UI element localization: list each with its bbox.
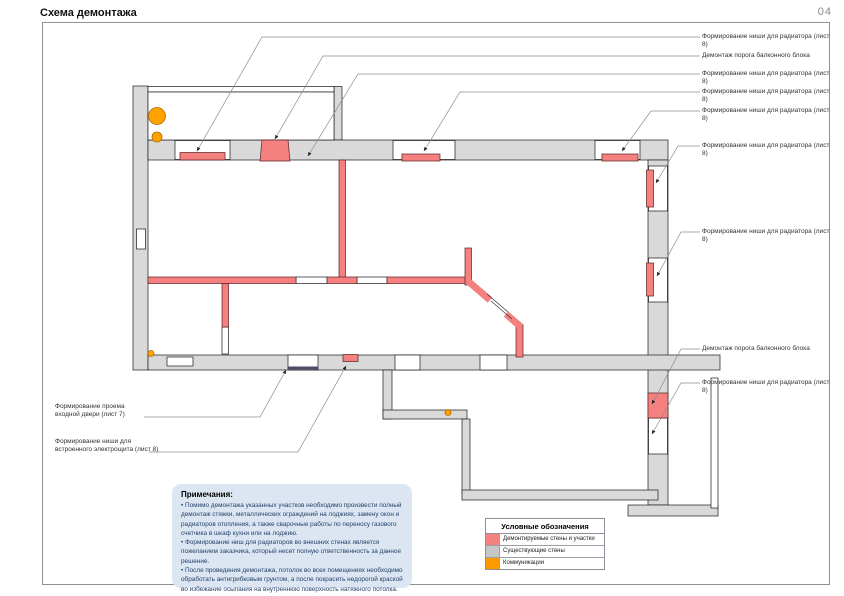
wall-wc-bottom — [383, 410, 467, 419]
demolished-walls — [148, 140, 668, 418]
demo-wall-horiz-1 — [148, 277, 296, 284]
door-opening-hall — [395, 355, 420, 370]
legend-box: Условные обозначения Демонтируемые стены… — [485, 518, 605, 570]
callout-radiator-niche-3: Формирование ниши для радиатора (лист 8) — [702, 88, 832, 104]
balcony-threshold-bottom — [648, 393, 668, 418]
demo-wall-horiz-2 — [327, 277, 357, 284]
demo-wall-horiz-3 — [387, 277, 466, 284]
note-item-2: • Формирование ниш для радиаторов во вне… — [181, 538, 403, 566]
demo-wall-kitchen-divider — [339, 160, 346, 278]
balcony-interior — [148, 92, 334, 140]
door-gap-redwall-3 — [222, 327, 229, 354]
radiator-niche-d — [647, 170, 654, 207]
legend-label-communications: Коммуникации — [500, 558, 604, 569]
legend-swatch-communications — [486, 558, 500, 569]
door-gap-redwall-2 — [357, 277, 387, 284]
comm-gas-meter — [149, 108, 166, 125]
legend-swatch-demolished — [486, 534, 500, 545]
callout-balcony-threshold-1: Демонтаж порога балконного блока — [702, 52, 832, 60]
wall-lower-left — [462, 419, 470, 494]
notes-title: Примечания: — [181, 490, 403, 499]
wall-loggia-bottom — [628, 505, 718, 516]
radiator-niche-c — [602, 154, 638, 161]
demolished-diagonal-wall — [469, 282, 521, 327]
legend-swatch-existing — [486, 546, 500, 557]
wall-balcony-right — [334, 87, 342, 141]
wall-bottom-band — [148, 355, 720, 370]
leader-l1 — [144, 370, 286, 417]
callout-entrance-line1: Формирование проема — [55, 403, 165, 411]
drawing-sheet: Схема демонтажа 04 — [0, 0, 844, 596]
notes-panel: Примечания: • Помимо демонтажа указанных… — [172, 484, 412, 588]
callout-radiator-niche-5: Формирование ниши для радиатора (лист 8) — [702, 142, 832, 158]
legend-title: Условные обозначения — [486, 519, 604, 534]
wall-lower-bottom — [462, 490, 658, 500]
callout-radiator-niche-6: Формирование ниши для радиатора (лист 8) — [702, 228, 832, 244]
comm-gas-point — [152, 132, 162, 142]
door-gap-redwall-1 — [296, 277, 327, 284]
legend-row-communications: Коммуникации — [486, 558, 604, 569]
diag-door-edge-1 — [487, 294, 508, 312]
leader-l2 — [149, 366, 346, 452]
callout-electro-niche: Формирование ниши для встроенного электр… — [55, 438, 165, 454]
callout-electro-line1: Формирование ниши для — [55, 438, 165, 446]
callout-radiator-niche-2: Формирование ниши для радиатора (лист 8) — [702, 70, 832, 86]
callout-entrance-line2: входной двери (лист 7) — [55, 411, 165, 419]
callout-entrance-opening: Формирование проема входной двери (лист … — [55, 403, 165, 419]
balcony-threshold-top — [260, 140, 290, 161]
legend-label-demolished: Демонтируемые стены и участки — [500, 534, 604, 545]
demo-wall-stub — [465, 248, 472, 285]
radiator-niche-e — [647, 263, 654, 296]
callout-radiator-niche-4: Формирование ниши для радиатора (лист 8) — [702, 107, 832, 123]
legend-label-existing: Существующие стены — [500, 546, 604, 557]
entrance-threshold-line — [288, 367, 318, 370]
wall-left — [133, 86, 148, 370]
door-opening-room — [480, 355, 507, 370]
callout-radiator-niche-1: Формирование ниши для радиатора (лист 8) — [702, 33, 832, 49]
diag-door-edge-2 — [491, 301, 512, 319]
legend-row-existing: Существующие стены — [486, 546, 604, 558]
legend-row-demolished: Демонтируемые стены и участки — [486, 534, 604, 546]
diag-red-seg-1 — [469, 282, 490, 300]
niche-left-wall — [137, 229, 146, 249]
old-entrance-door — [167, 357, 193, 366]
comm-point-wc — [445, 410, 451, 416]
callout-electro-line2: встроенного электрощита (лист 8) — [55, 446, 165, 454]
balcony-glazing-top — [148, 87, 334, 93]
electro-panel-niche — [343, 355, 358, 362]
note-item-3: • После проведения демонтажа, потолок во… — [181, 566, 403, 594]
demo-wall-vert-hall — [222, 284, 229, 328]
note-item-1: • Помимо демонтажа указанных участков не… — [181, 501, 403, 538]
callout-radiator-niche-7: Формирование ниши для радиатора (лист 8) — [702, 379, 832, 395]
callout-balcony-threshold-2: Демонтаж порога балконного блока — [702, 345, 832, 353]
loggia-glazing-right — [711, 378, 718, 508]
radiator-niche-b — [402, 154, 440, 161]
radiator-niche-a — [180, 153, 225, 161]
demo-wall-vert-diag-end — [516, 325, 523, 357]
comm-point-hall — [148, 351, 154, 357]
